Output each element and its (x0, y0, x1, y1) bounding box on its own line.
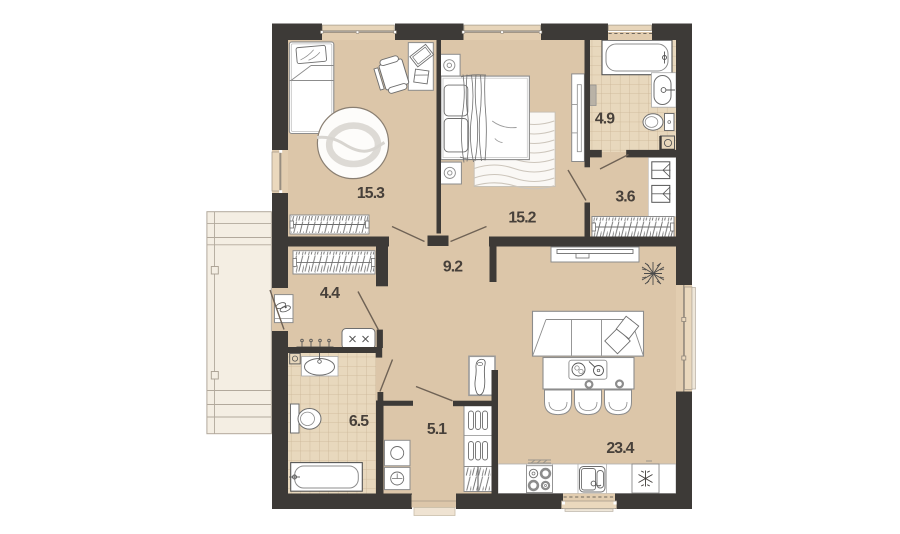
svg-text:15.2: 15.2 (508, 210, 536, 227)
svg-text:3.6: 3.6 (615, 189, 635, 206)
svg-text:23.4: 23.4 (606, 440, 634, 457)
svg-text:6.5: 6.5 (349, 413, 369, 430)
svg-text:4.4: 4.4 (320, 285, 340, 302)
svg-text:15.3: 15.3 (357, 185, 385, 202)
svg-text:4.9: 4.9 (595, 111, 615, 128)
svg-text:5.1: 5.1 (427, 421, 447, 438)
svg-text:9.2: 9.2 (443, 259, 463, 276)
